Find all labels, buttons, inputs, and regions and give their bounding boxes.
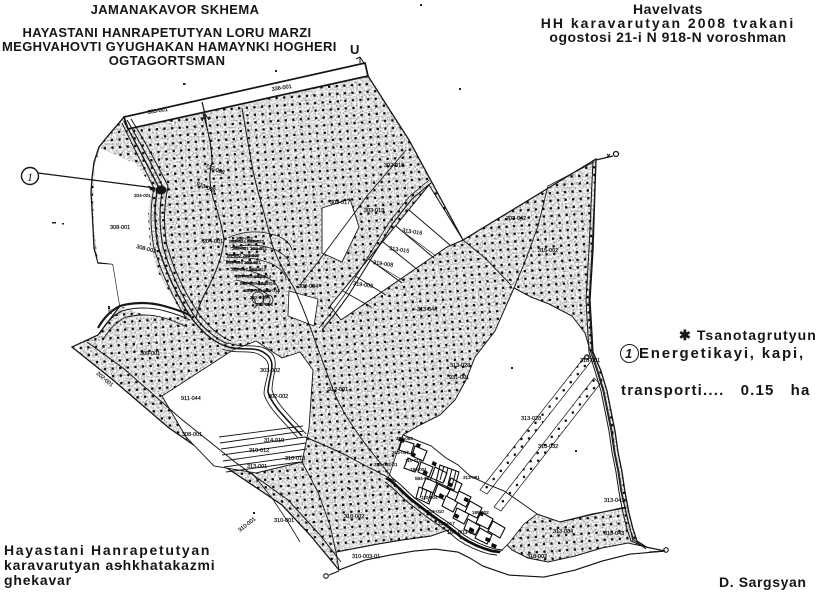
svg-text:313-002-01: 313-002-01	[374, 462, 398, 467]
svg-text:584-001: 584-001	[415, 476, 432, 481]
svg-text:310-003-01: 310-003-01	[352, 554, 380, 560]
svg-text:302-004: 302-004	[298, 284, 318, 290]
svg-text:313-017: 313-017	[438, 521, 455, 526]
svg-text:202-024: 202-024	[256, 302, 273, 307]
svg-text:302-017: 302-017	[330, 200, 350, 206]
svg-text:313-001: 313-001	[247, 464, 267, 470]
svg-text:1: 1	[27, 170, 33, 184]
svg-text:202-014: 202-014	[250, 295, 267, 300]
svg-text:110-010: 110-010	[405, 458, 422, 463]
svg-text:313-083: 313-083	[396, 436, 413, 441]
svg-text:313-044: 313-044	[417, 307, 437, 313]
svg-text:312-001: 312-001	[328, 387, 348, 393]
svg-text:931-001: 931-001	[449, 375, 469, 381]
svg-text:308-001: 308-001	[182, 432, 202, 438]
svg-text:314-010: 314-010	[264, 438, 284, 444]
svg-text:309-001: 309-001	[140, 351, 160, 357]
svg-text:313-032: 313-032	[538, 444, 558, 450]
svg-text:313-081: 313-081	[463, 475, 480, 480]
svg-text:310-001: 310-001	[238, 516, 258, 533]
svg-text:313-041: 313-041	[604, 498, 624, 504]
svg-text:110-004: 110-004	[421, 495, 438, 500]
svg-text:203-042: 203-042	[506, 216, 526, 222]
svg-text:302-016: 302-016	[384, 163, 404, 169]
svg-text:313-084: 313-084	[553, 529, 573, 535]
svg-text:313-010: 313-010	[427, 509, 444, 514]
svg-text:313-028: 313-028	[521, 416, 541, 422]
svg-text:310-001: 310-001	[274, 518, 294, 524]
svg-text:902-002: 902-002	[268, 394, 288, 400]
svg-text:310-018: 310-018	[285, 456, 305, 462]
svg-text:U: U	[350, 42, 359, 57]
svg-text:186-001: 186-001	[410, 467, 427, 472]
svg-text:308-001: 308-001	[110, 225, 130, 231]
svg-text:313-028: 313-028	[450, 363, 470, 369]
svg-text:313-017: 313-017	[392, 450, 409, 455]
svg-text:204-001: 204-001	[203, 239, 223, 245]
svg-text:318-002: 318-002	[527, 554, 547, 560]
svg-text:303-002: 303-002	[260, 368, 280, 374]
svg-text:302-002: 302-002	[236, 236, 253, 241]
svg-text:313-043: 313-043	[604, 531, 624, 537]
svg-text:185-002: 185-002	[472, 510, 489, 515]
svg-text:911-044: 911-044	[181, 396, 201, 402]
svg-text:303-013: 303-013	[364, 208, 384, 214]
svg-text:204-001: 204-001	[134, 193, 151, 198]
svg-text:310-002: 310-002	[344, 514, 364, 520]
svg-text:318-001: 318-001	[580, 358, 600, 364]
svg-text:315-002: 315-002	[538, 248, 558, 254]
svg-text:186-003-01: 186-003-01	[447, 530, 475, 536]
svg-text:310-012: 310-012	[249, 448, 269, 454]
